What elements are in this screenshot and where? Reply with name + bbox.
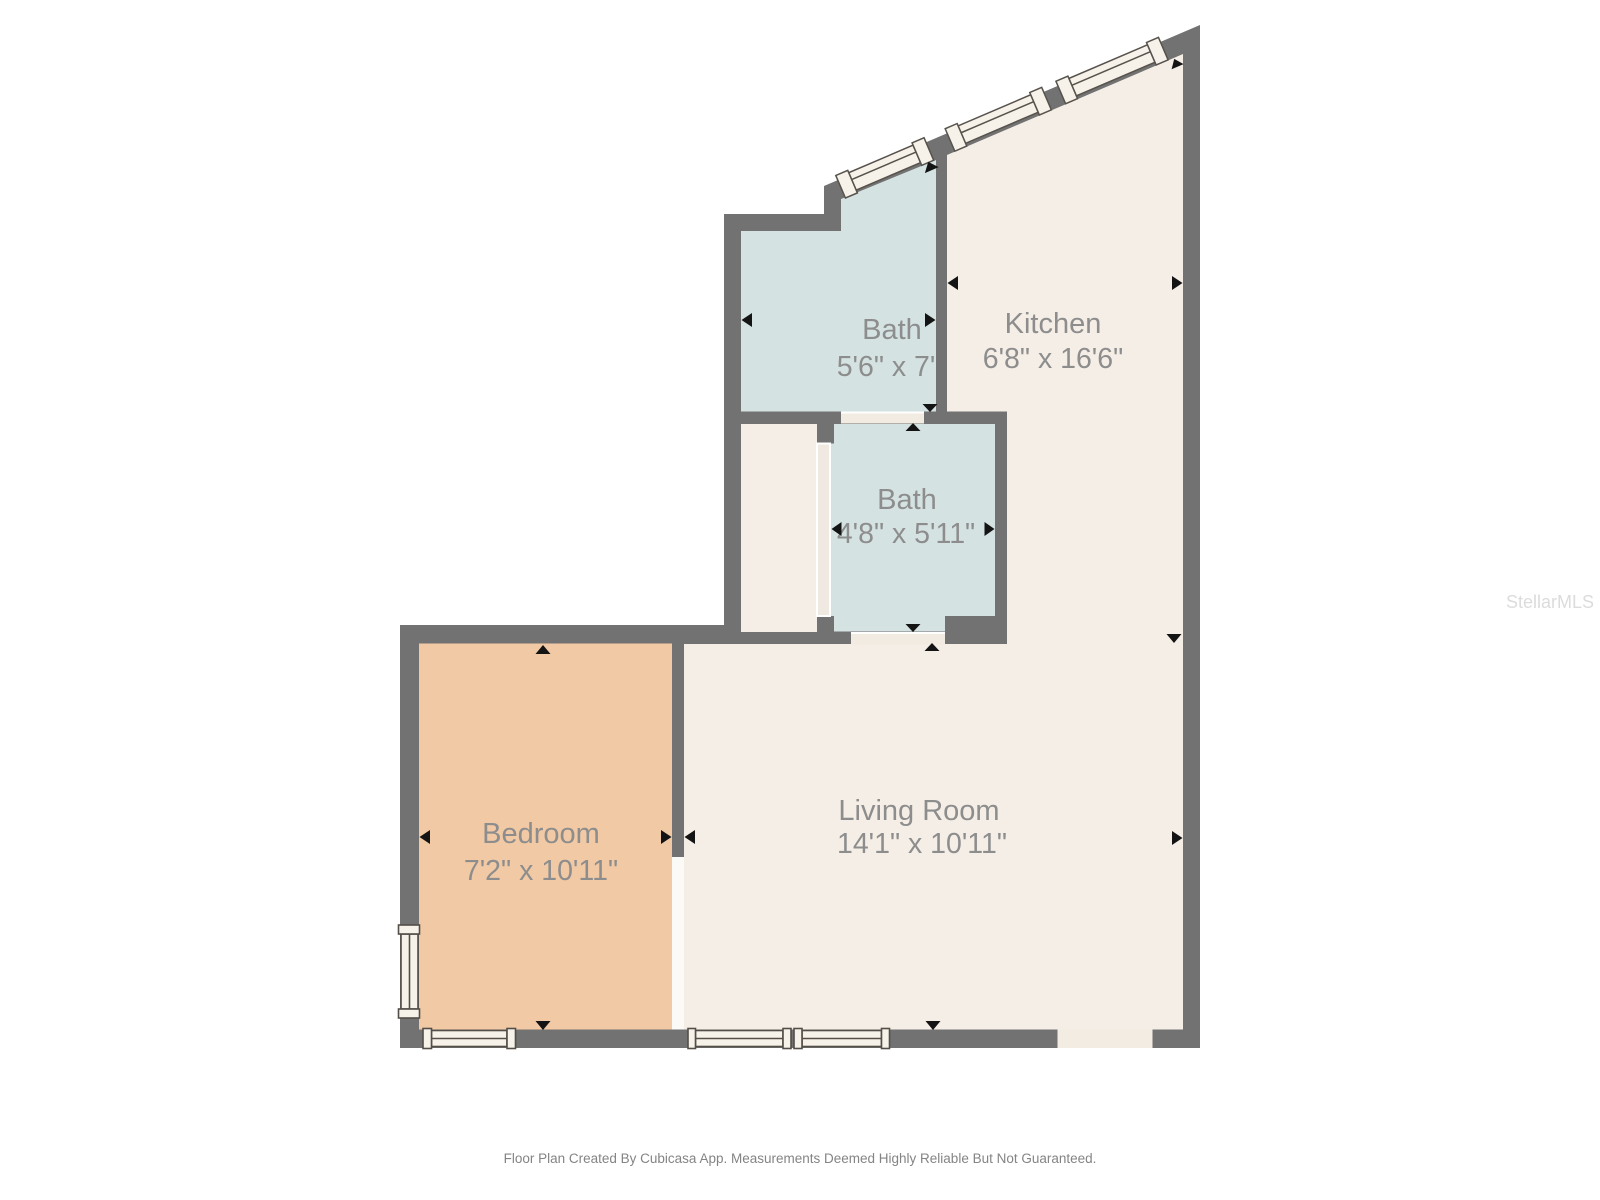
svg-text:Bath: Bath [862,314,922,346]
svg-text:Bedroom: Bedroom [482,818,600,850]
svg-text:4'8" x 5'11": 4'8" x 5'11" [837,518,975,550]
svg-text:6'8" x 16'6": 6'8" x 16'6" [983,343,1123,375]
svg-text:Living Room: Living Room [838,795,999,827]
svg-text:StellarMLS: StellarMLS [1506,592,1594,612]
svg-text:Floor Plan Created By Cubicasa: Floor Plan Created By Cubicasa App. Meas… [504,1151,1097,1166]
svg-text:14'1" x 10'11": 14'1" x 10'11" [837,828,1007,860]
svg-text:Kitchen: Kitchen [1005,308,1102,340]
svg-text:Bath: Bath [877,484,937,516]
svg-text:7'2" x 10'11": 7'2" x 10'11" [464,855,618,887]
